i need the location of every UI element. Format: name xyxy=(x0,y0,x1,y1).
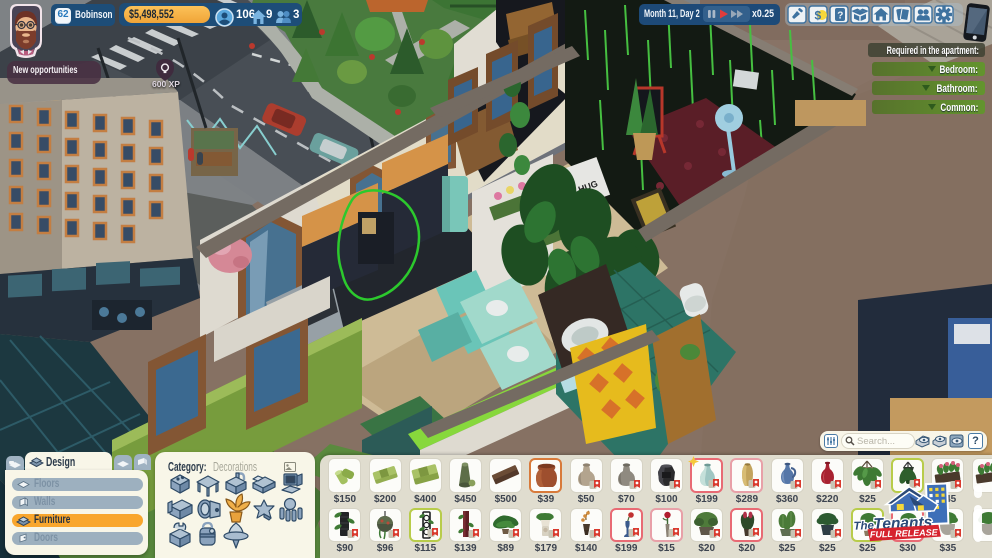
svg-text:?: ? xyxy=(837,11,843,22)
svg-text:FULL RELEASE: FULL RELEASE xyxy=(870,527,939,539)
svg-text:$: $ xyxy=(815,9,822,23)
